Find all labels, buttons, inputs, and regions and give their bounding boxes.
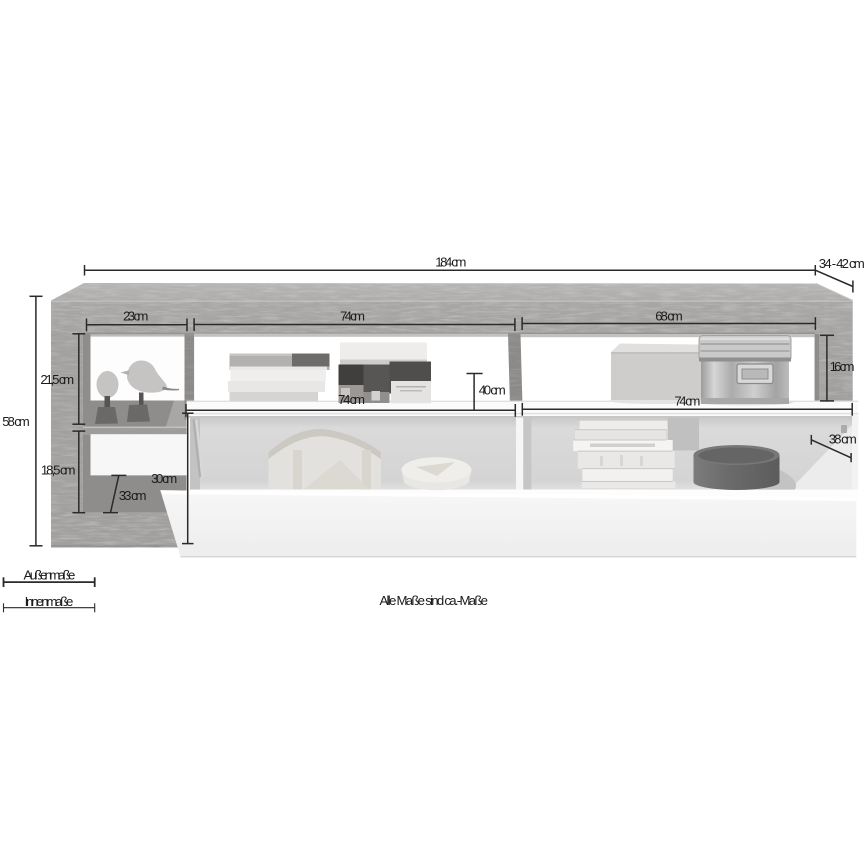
svg-text:40 cm: 40 cm xyxy=(479,382,506,397)
svg-text:21,5 cm: 21,5 cm xyxy=(40,372,74,387)
svg-text:74 cm: 74 cm xyxy=(674,393,700,408)
svg-text:18,5 cm: 18,5 cm xyxy=(41,462,76,477)
svg-text:16 cm: 16 cm xyxy=(830,359,855,374)
svg-text:Außenmaße: Außenmaße xyxy=(24,568,76,583)
svg-text:23 cm: 23 cm xyxy=(123,309,148,324)
svg-text:74 cm: 74 cm xyxy=(338,392,365,407)
svg-text:74 cm: 74 cm xyxy=(340,309,365,324)
svg-text:33 cm: 33 cm xyxy=(119,488,147,503)
svg-text:30 cm: 30 cm xyxy=(151,471,177,486)
svg-text:184 cm: 184 cm xyxy=(435,255,466,270)
svg-text:58 cm: 58 cm xyxy=(2,414,30,429)
svg-text:38 cm: 38 cm xyxy=(829,432,857,447)
svg-text:Alle Maße sind ca.-Maße: Alle Maße sind ca.-Maße xyxy=(380,593,489,608)
svg-text:Innenmaße: Innenmaße xyxy=(25,594,74,609)
svg-text:68 cm: 68 cm xyxy=(655,308,682,323)
svg-text:34 - 42 cm: 34 - 42 cm xyxy=(819,256,865,271)
